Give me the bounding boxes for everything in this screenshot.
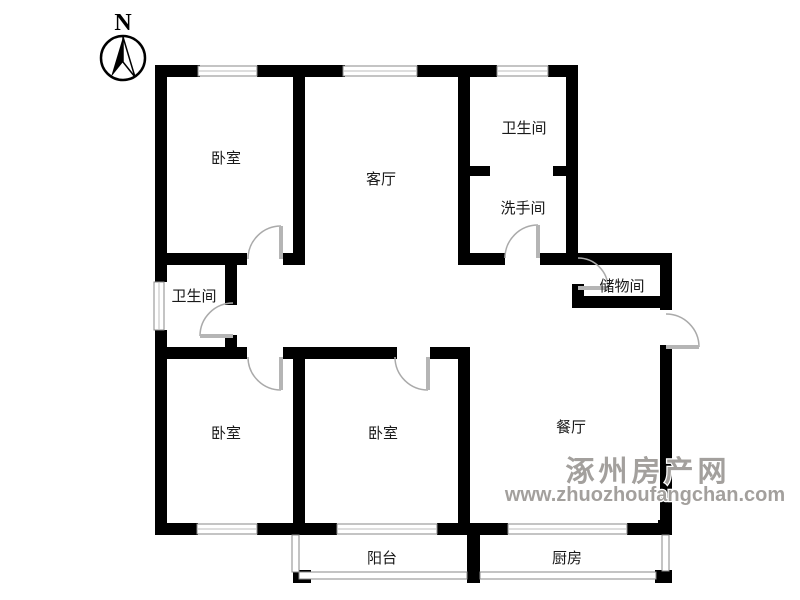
window-frame xyxy=(299,572,467,579)
door-swing-arc xyxy=(395,357,428,390)
wall-segment xyxy=(660,345,672,535)
wall-segment xyxy=(553,166,578,176)
floorplan-canvas: N xyxy=(0,0,800,600)
room-label-washroom: 洗手间 xyxy=(500,200,545,217)
compass-north-label: N xyxy=(114,10,132,36)
wall-segment xyxy=(658,520,672,535)
door-washroom xyxy=(505,225,538,258)
window xyxy=(508,524,627,534)
wall-segment xyxy=(225,253,237,305)
window xyxy=(337,524,437,534)
window-frame xyxy=(480,572,656,579)
window xyxy=(198,66,257,76)
wall-segment xyxy=(572,296,672,308)
door-bathroom-left xyxy=(200,303,233,336)
wall-segment xyxy=(470,166,490,176)
wall-segment xyxy=(660,253,672,310)
room-label-bathroom-left: 卫生间 xyxy=(171,288,216,305)
wall-segment xyxy=(293,347,305,535)
room-label-balcony: 阳台 xyxy=(367,550,397,567)
wall-segment xyxy=(293,65,305,265)
door-bedroom-bottom-middle xyxy=(395,357,428,390)
wall-segment xyxy=(257,523,337,535)
door-swing-arc xyxy=(248,226,281,259)
room-label-kitchen: 厨房 xyxy=(552,550,582,567)
door-swing-arc xyxy=(248,357,281,390)
door-swing-arc xyxy=(505,225,538,258)
wall-segment xyxy=(458,65,470,265)
wall-segment xyxy=(155,347,247,359)
wall-segment xyxy=(417,65,497,77)
wall-segment xyxy=(566,65,578,265)
wall-segment xyxy=(540,253,672,265)
floorplan-svg: N xyxy=(0,0,800,600)
room-label-bathroom-top: 卫生间 xyxy=(501,120,546,137)
wall-segment xyxy=(655,570,672,583)
door-bedroom-top-left xyxy=(248,226,281,259)
door-swing-arc xyxy=(200,303,233,336)
wall-segment xyxy=(155,65,167,282)
door-entry xyxy=(666,314,699,347)
wall-segment xyxy=(458,253,505,265)
window xyxy=(497,66,548,76)
door-swing-arc xyxy=(666,314,699,347)
window xyxy=(154,282,164,330)
window-frame xyxy=(662,535,669,571)
wall-segment xyxy=(155,523,198,535)
room-label-living-room: 客厅 xyxy=(366,171,396,188)
room-label-bedroom-bottom-middle: 卧室 xyxy=(368,425,398,442)
room-label-bedroom-top-left: 卧室 xyxy=(211,150,241,167)
window-frame xyxy=(292,535,299,572)
room-label-dining-room: 餐厅 xyxy=(556,419,586,436)
window xyxy=(343,66,417,76)
watermark-url: www.zhuozhoufangchan.com xyxy=(504,484,785,506)
door-bedroom-bottom-left xyxy=(248,357,281,390)
wall-segment xyxy=(467,523,480,583)
wall-segment xyxy=(155,330,167,535)
wall-segment xyxy=(283,253,305,265)
room-label-bedroom-bottom-left: 卧室 xyxy=(211,425,241,442)
watermark: 涿州房产网 www.zhuozhoufangchan.com xyxy=(504,455,785,506)
window xyxy=(197,524,257,534)
wall-segment xyxy=(458,347,470,535)
room-label-storage-room: 储物间 xyxy=(599,278,644,295)
compass: N xyxy=(101,10,145,80)
